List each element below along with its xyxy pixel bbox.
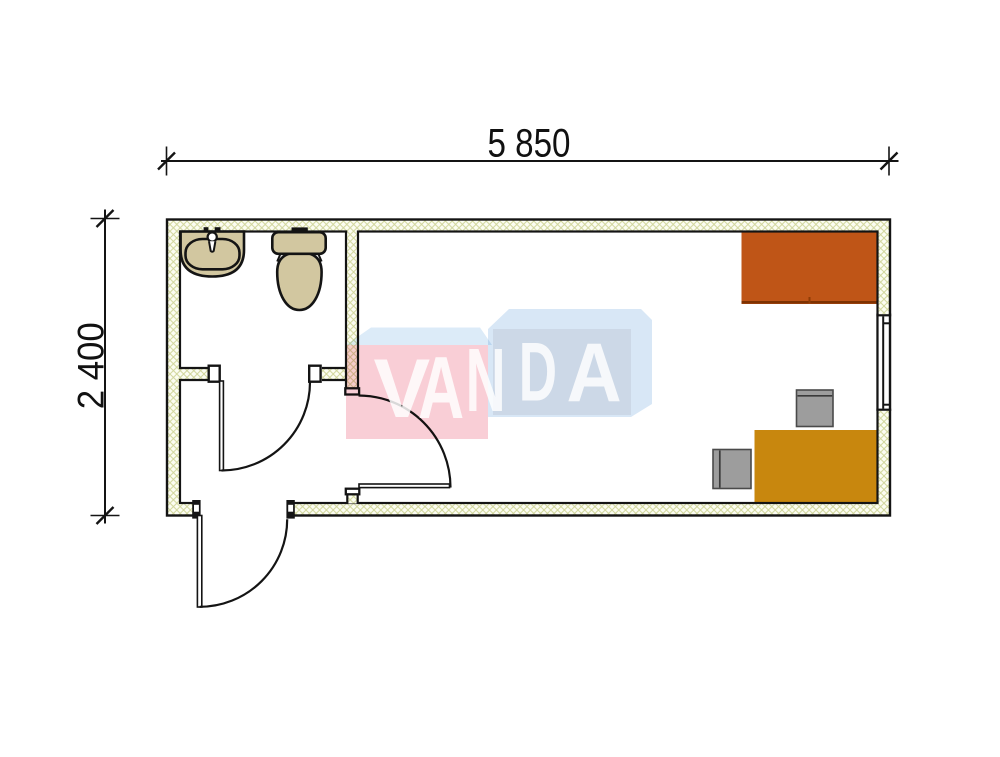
svg-text:D: D [519, 325, 557, 418]
svg-text:N: N [466, 330, 506, 430]
svg-text:5 850: 5 850 [488, 122, 571, 166]
svg-text:A: A [567, 326, 622, 419]
svg-text:A: A [418, 339, 464, 437]
svg-text:2 400: 2 400 [69, 322, 111, 409]
